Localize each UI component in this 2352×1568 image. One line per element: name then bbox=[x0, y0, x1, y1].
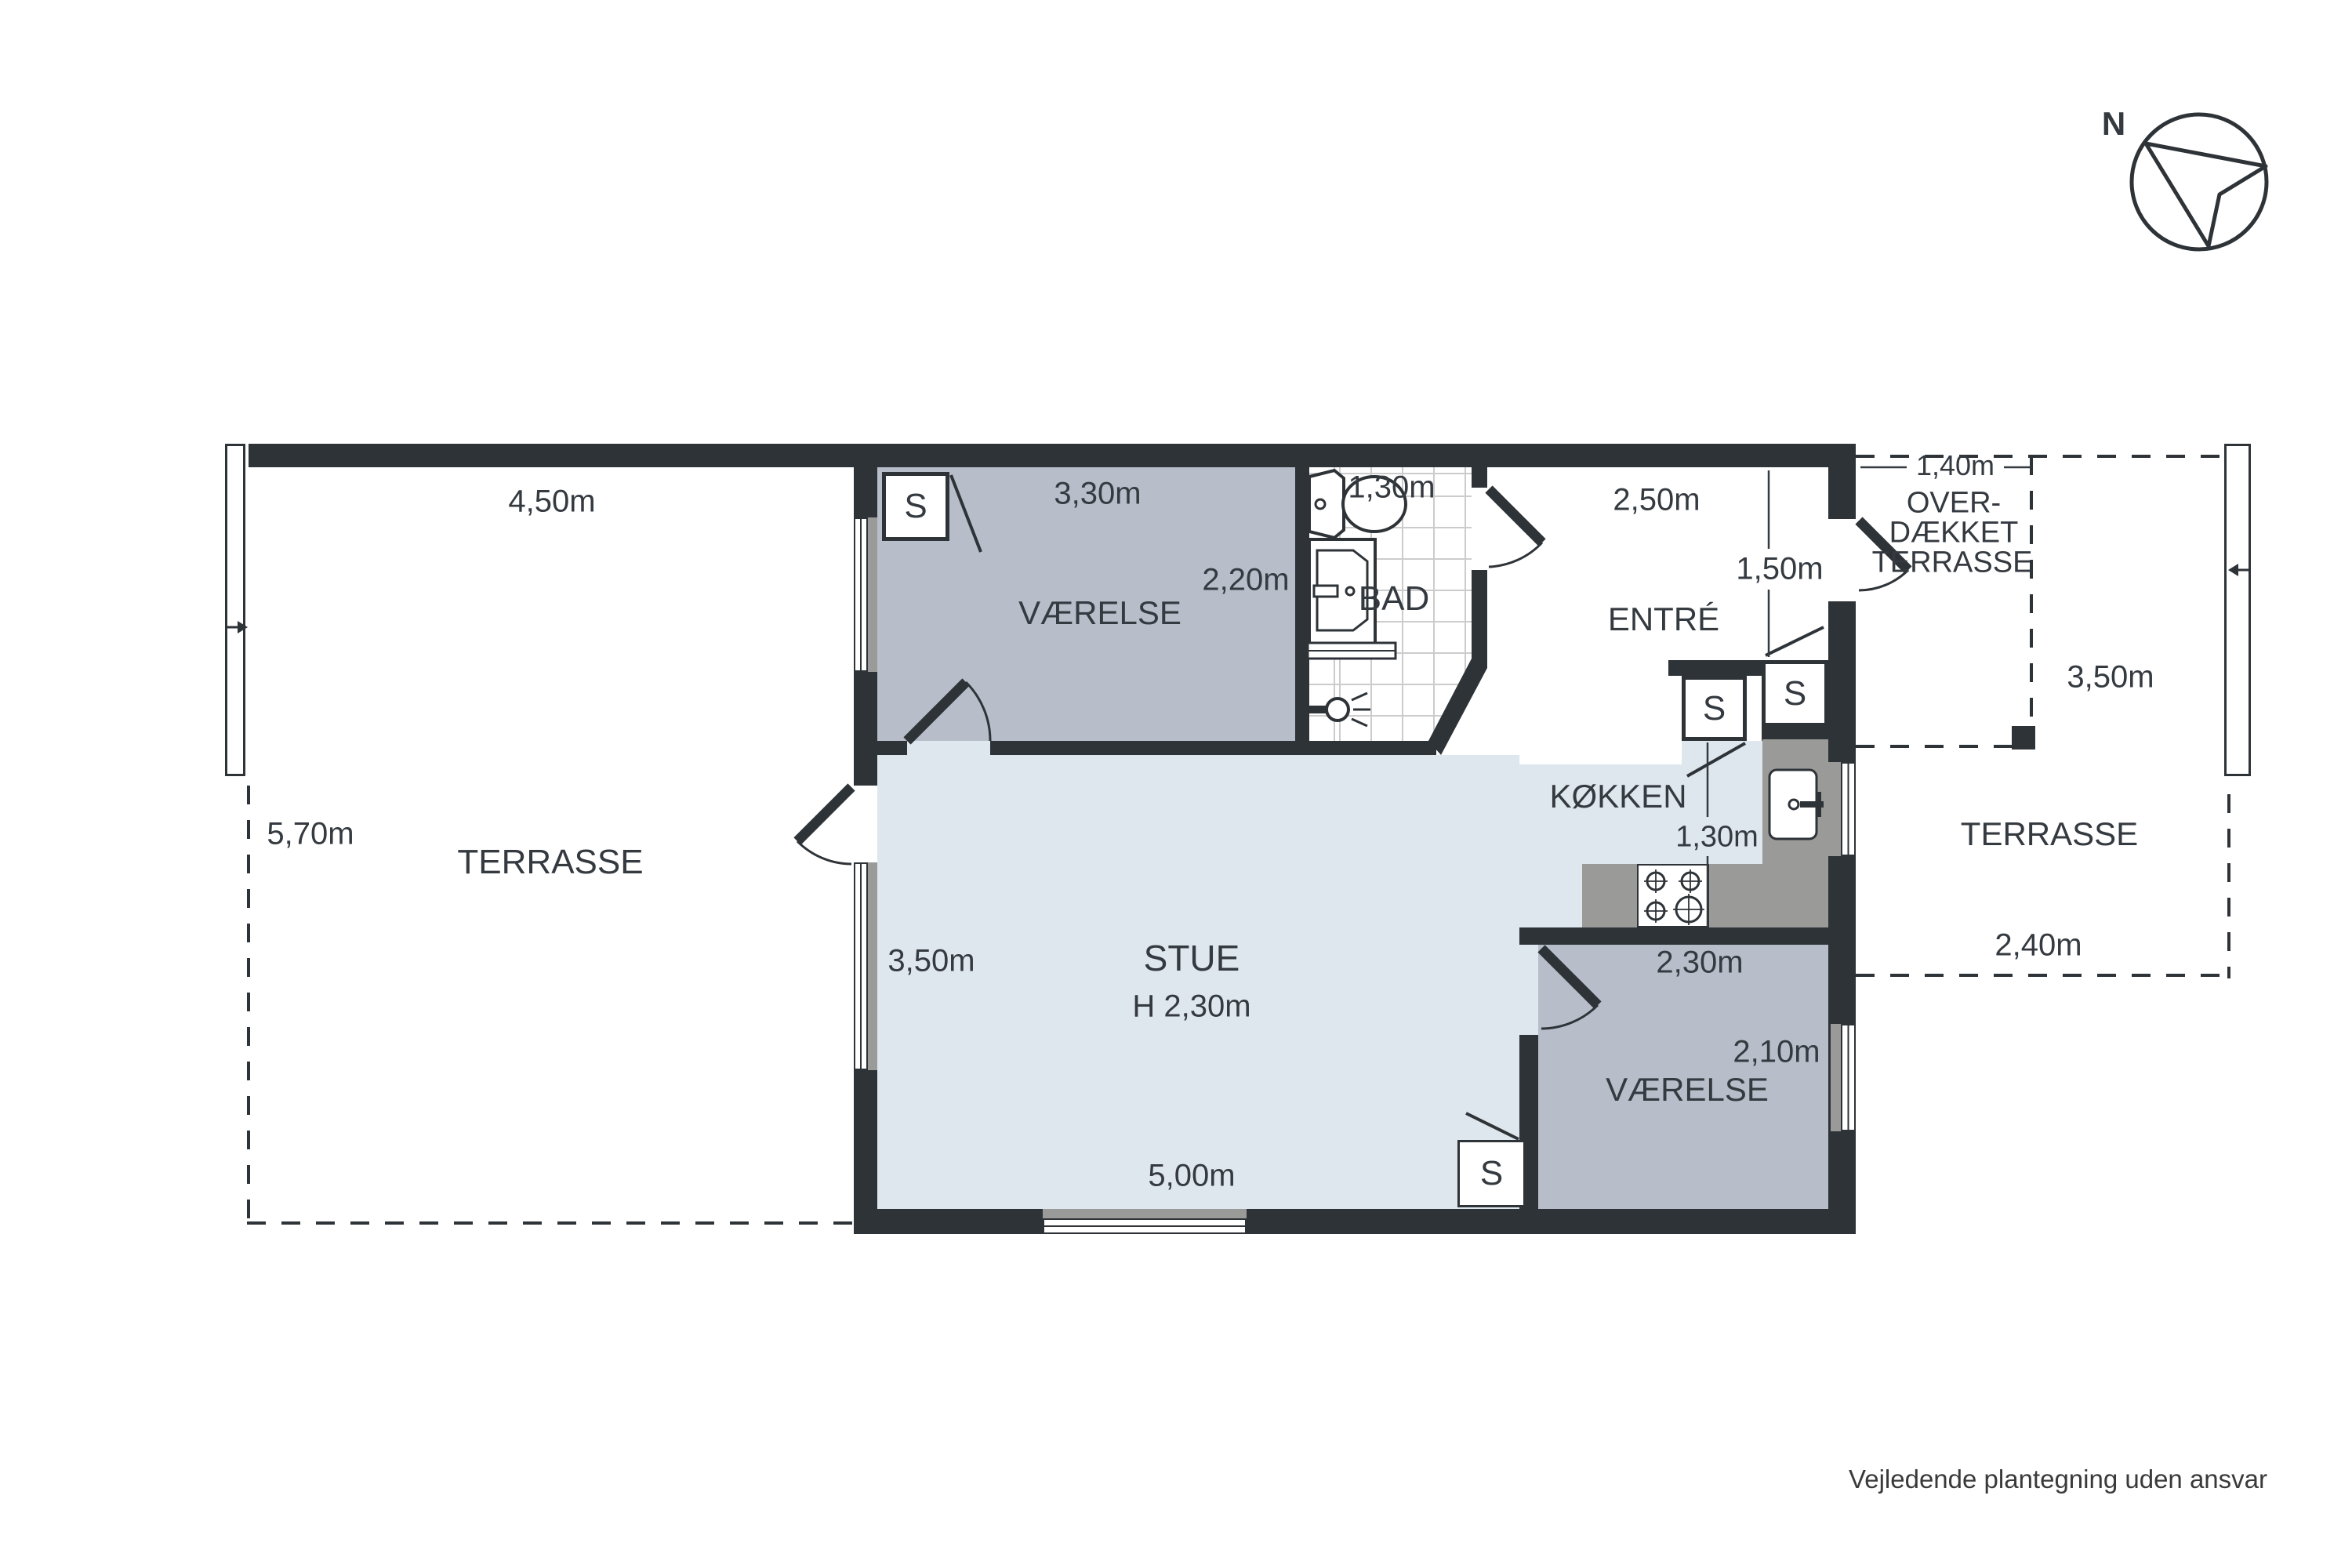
bathroom-shelf-icon bbox=[1308, 643, 1396, 659]
terrace-right-width-label: 2,40m bbox=[1994, 928, 2082, 964]
terrace-left-height-label: 5,70m bbox=[267, 817, 354, 852]
entre-height-label: 1,50m bbox=[1736, 552, 1823, 587]
compass-north-label: N bbox=[2102, 105, 2125, 143]
compass-icon bbox=[2132, 114, 2267, 249]
floor-plan-canvas: S S S S bbox=[0, 0, 2352, 1568]
closet-entre-right-door-line bbox=[1766, 627, 1824, 655]
terrace-left-name-label: TERRASSE bbox=[457, 843, 643, 882]
stove-burners-icon bbox=[1644, 869, 1704, 925]
bathroom-door-icon bbox=[1489, 489, 1542, 567]
covered-terrace-name-line3: TERRASSE bbox=[1872, 546, 2033, 580]
measure-arrow-right-icon bbox=[2228, 564, 2249, 576]
bedroom1-height-label: 2,20m bbox=[1202, 563, 1289, 598]
bedroom2-height-label: 2,10m bbox=[1733, 1035, 1820, 1070]
covered-terrace-name-line2: DÆKKET bbox=[1889, 517, 2019, 550]
livingroom-side-label: 3,50m bbox=[887, 944, 975, 979]
livingroom-ceiling-label: H 2,30m bbox=[1132, 989, 1250, 1025]
disclaimer-text: Vejledende plantegning uden ansvar bbox=[1849, 1465, 2267, 1494]
plan-vector-overlay bbox=[0, 0, 2352, 1568]
bedroom2-door-icon bbox=[1541, 949, 1598, 1029]
bathroom-name-label: BAD bbox=[1359, 579, 1429, 619]
terrace-left-width-label: 4,50m bbox=[508, 485, 595, 520]
entre-width-label: 2,50m bbox=[1613, 483, 1700, 518]
shower-icon bbox=[1308, 693, 1370, 726]
entre-name-label: ENTRÉ bbox=[1608, 601, 1719, 638]
bedroom1-door-icon bbox=[907, 682, 990, 741]
kitchen-name-label: KØKKEN bbox=[1549, 778, 1686, 815]
kitchen-sink-icon bbox=[1769, 770, 1824, 839]
bathroom-width-label: 1,30m bbox=[1348, 470, 1435, 506]
kitchen-width-label: 1,30m bbox=[1675, 821, 1759, 855]
closet-bedroom1-door-line bbox=[951, 475, 981, 552]
terrace-door-icon bbox=[797, 787, 851, 864]
bedroom2-width-label: 2,30m bbox=[1656, 946, 1743, 981]
bedroom2-name-label: VÆRELSE bbox=[1606, 1071, 1769, 1109]
closet-livingroom-door-line bbox=[1466, 1113, 1519, 1139]
measure-arrow-left-icon bbox=[227, 621, 248, 633]
covered-terrace-width-label: 1,40m bbox=[1916, 449, 1994, 482]
closet-entre-left-door-line bbox=[1687, 743, 1745, 776]
livingroom-name-label: STUE bbox=[1144, 937, 1240, 979]
bedroom1-name-label: VÆRELSE bbox=[1018, 594, 1181, 632]
wall-bath-diagonal bbox=[1428, 659, 1487, 755]
livingroom-width-label: 5,00m bbox=[1148, 1159, 1235, 1194]
covered-terrace-name-line1: OVER- bbox=[1907, 487, 2001, 521]
bedroom1-width-label: 3,30m bbox=[1054, 477, 1141, 512]
terrace-right-name-label: TERRASSE bbox=[1961, 815, 2138, 853]
covered-terrace-height-label: 3,50m bbox=[2067, 660, 2154, 695]
